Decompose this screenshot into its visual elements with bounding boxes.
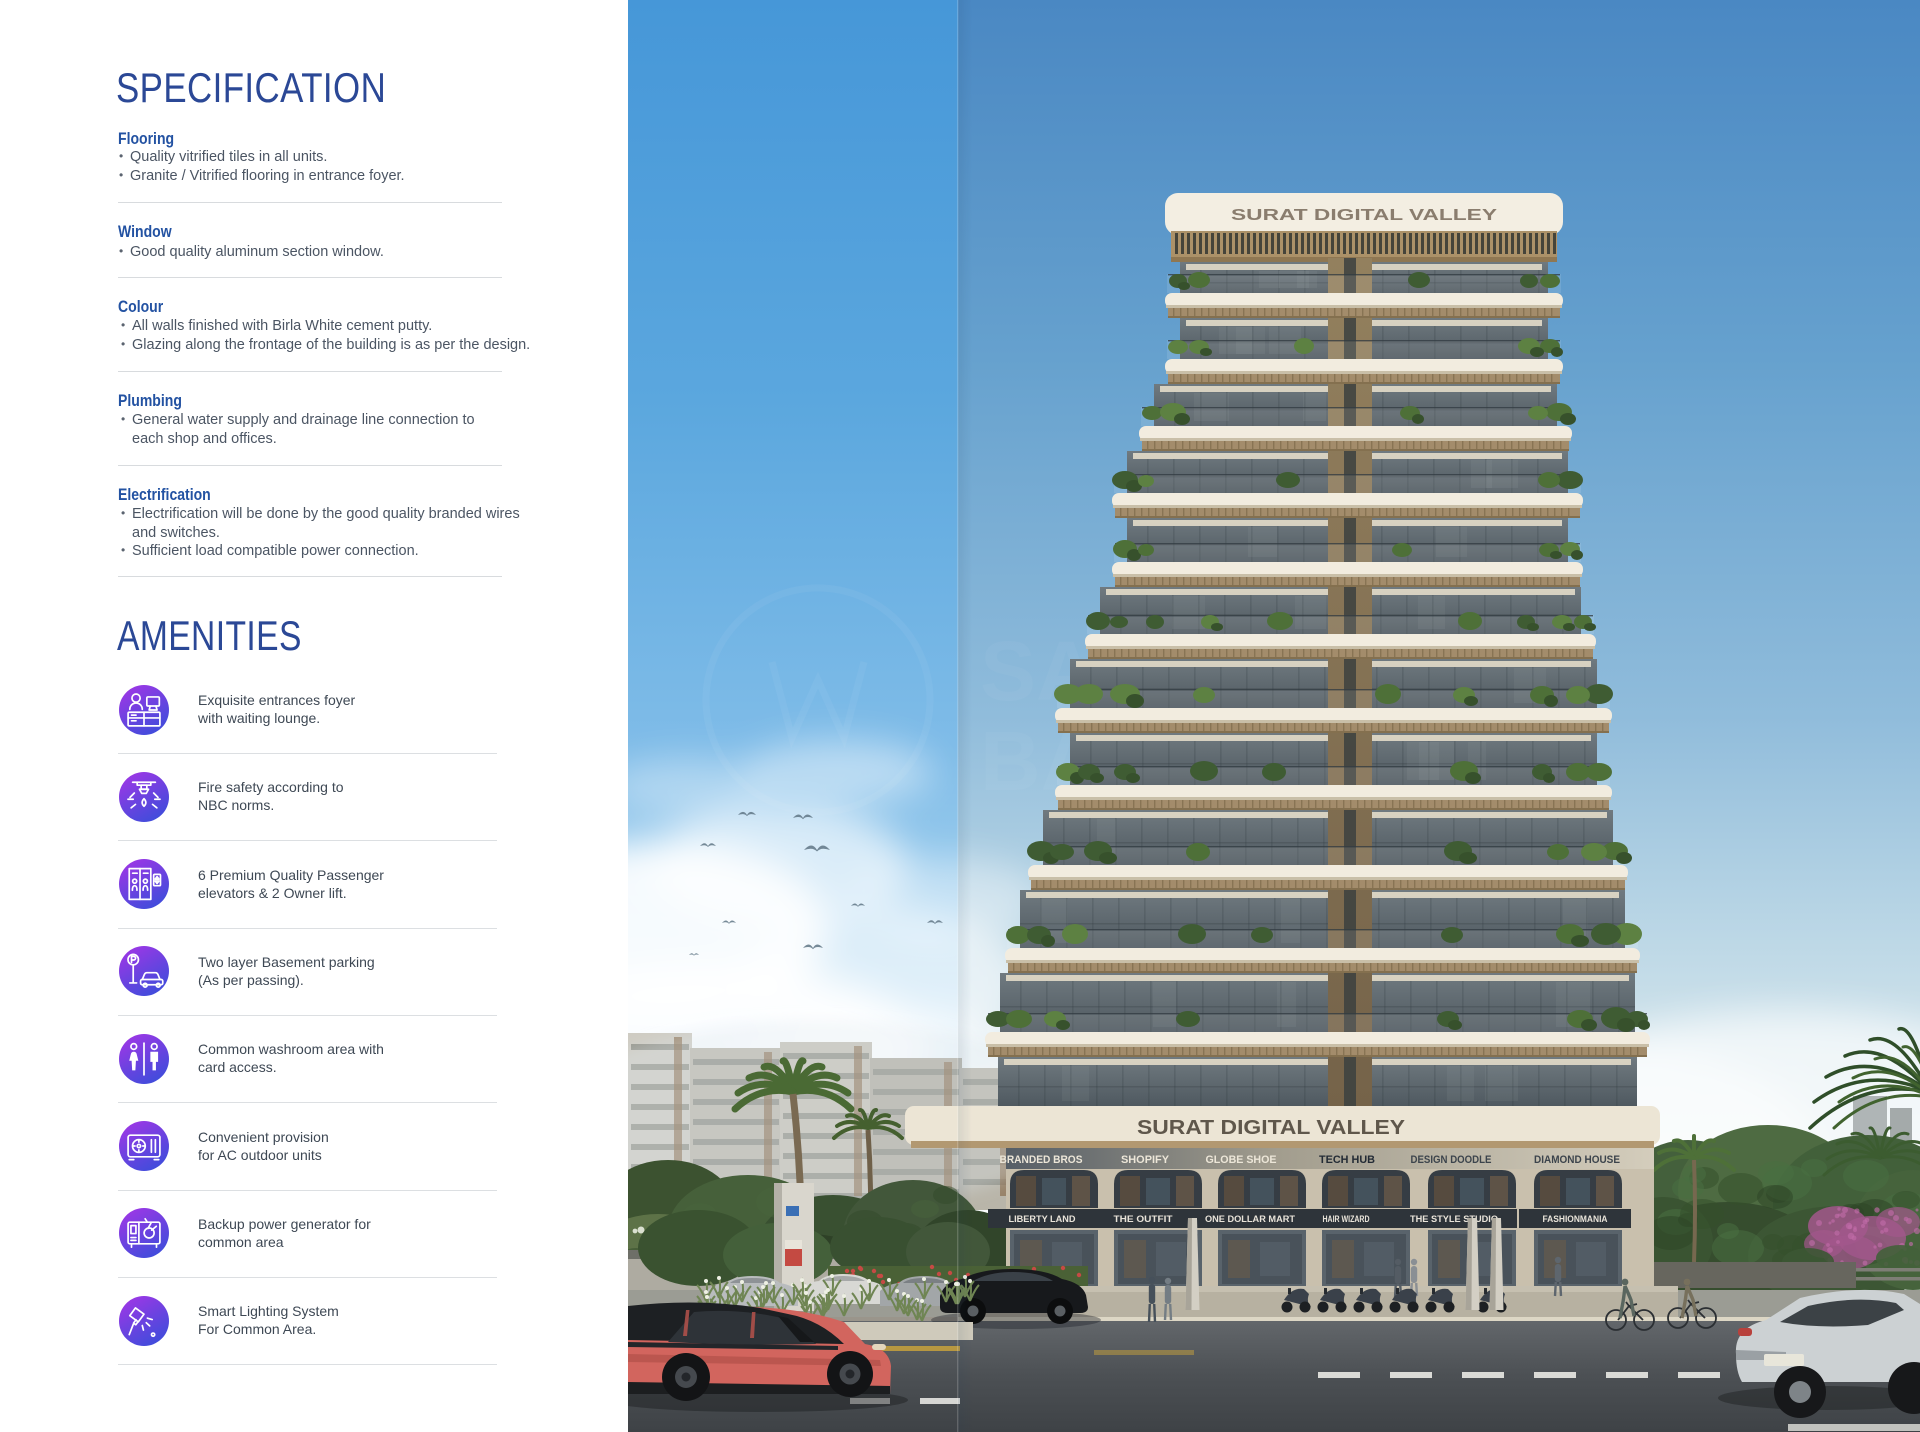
svg-text:HAIR WIZARD: HAIR WIZARD xyxy=(1323,1214,1370,1225)
svg-text:FASHIONMANIA: FASHIONMANIA xyxy=(1543,1214,1608,1225)
svg-text:LIBERTY LAND: LIBERTY LAND xyxy=(1009,1214,1076,1225)
svg-text:SURAT DIGITAL VALLEY: SURAT DIGITAL VALLEY xyxy=(1231,207,1498,224)
svg-text:DESIGN DOODLE: DESIGN DOODLE xyxy=(1411,1154,1492,1166)
svg-text:SHOPIFY: SHOPIFY xyxy=(1121,1154,1170,1166)
svg-text:THE OUTFIT: THE OUTFIT xyxy=(1114,1214,1173,1225)
svg-text:TECH HUB: TECH HUB xyxy=(1319,1154,1375,1166)
svg-text:GLOBE SHOE: GLOBE SHOE xyxy=(1206,1154,1277,1166)
svg-text:ONE DOLLAR MART: ONE DOLLAR MART xyxy=(1205,1214,1295,1225)
svg-text:DIAMOND HOUSE: DIAMOND HOUSE xyxy=(1534,1154,1620,1166)
svg-text:BRANDED BROS: BRANDED BROS xyxy=(1000,1154,1083,1166)
svg-text:THE STYLE STUDIO: THE STYLE STUDIO xyxy=(1410,1214,1498,1225)
svg-text:SURAT DIGITAL VALLEY: SURAT DIGITAL VALLEY xyxy=(1137,1117,1406,1139)
